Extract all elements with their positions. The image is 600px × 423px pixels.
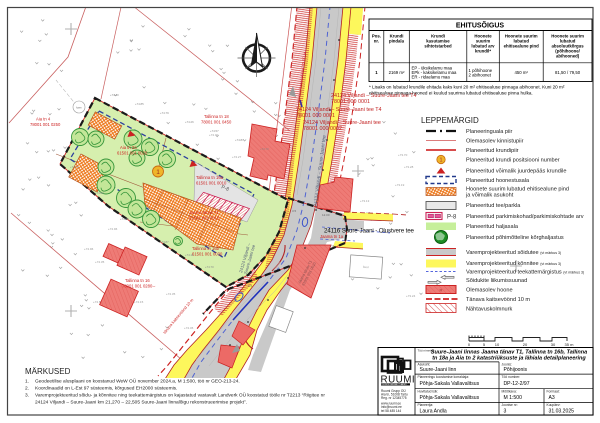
svg-text:35 m: 35 m bbox=[565, 342, 575, 347]
svg-text:ER - ridaelamu maa: ER - ridaelamu maa bbox=[412, 75, 451, 80]
svg-text:Jaama tänav T1: Jaama tänav T1 bbox=[189, 210, 220, 215]
svg-text:nr.: nr. bbox=[374, 39, 379, 44]
svg-text:3: 3 bbox=[504, 408, 507, 414]
svg-text:Formaat:: Formaat: bbox=[547, 389, 560, 393]
svg-text:abihooned): abihooned) bbox=[556, 54, 580, 59]
svg-text:Joonis:: Joonis: bbox=[502, 362, 513, 366]
svg-text:Huvitatud isik:: Huvitatud isik: bbox=[418, 389, 439, 393]
svg-text:20: 20 bbox=[523, 342, 528, 347]
svg-text:+74.87: +74.87 bbox=[160, 240, 169, 244]
svg-text:Planeerija:: Planeerija: bbox=[418, 403, 434, 407]
svg-text:+74.90: +74.90 bbox=[120, 217, 129, 221]
svg-text:10: 10 bbox=[495, 342, 500, 347]
svg-text:+74.84: +74.84 bbox=[95, 191, 104, 195]
svg-text:RUUMIS PARIMAD PLAANID: RUUMIS PARIMAD PLAANID bbox=[382, 383, 408, 386]
svg-text:Planeeritud krundipiir: Planeeritud krundipiir bbox=[466, 148, 519, 154]
svg-text:+74.35: +74.35 bbox=[166, 292, 176, 296]
svg-text:+73.28: +73.28 bbox=[404, 165, 414, 169]
svg-text:Sõidukite liikumissuunad: Sõidukite liikumissuunad bbox=[466, 278, 527, 284]
svg-text:Joonise nr:: Joonise nr: bbox=[502, 403, 518, 407]
svg-text:+73.19: +73.19 bbox=[395, 183, 405, 187]
svg-text:78001 000 0001: 78001 000 0001 bbox=[296, 113, 335, 119]
svg-text:P-8: P-8 bbox=[447, 215, 457, 221]
svg-text:2.: 2. bbox=[25, 386, 29, 392]
svg-text:Nähtavuskolmnurk: Nähtavuskolmnurk bbox=[466, 307, 513, 313]
svg-text:LEPPEMÄRGID: LEPPEMÄRGID bbox=[421, 116, 479, 125]
svg-text:31.03.2025: 31.03.2025 bbox=[549, 408, 575, 414]
svg-text:78001 000 0002: 78001 000 0002 bbox=[303, 126, 342, 132]
svg-text:3.5: 3.5 bbox=[248, 284, 253, 288]
svg-text:78001 001 0450: 78001 001 0450 bbox=[201, 120, 232, 125]
svg-text:+74.11: +74.11 bbox=[185, 253, 194, 257]
svg-text:tn 18a ja Aia tn 2 katastriüks: tn 18a ja Aia tn 2 katastriüksuste ja lä… bbox=[432, 356, 586, 362]
svg-text:Planeeritud põhimõtteline kõrg: Planeeritud põhimõtteline kõrghaljastus bbox=[466, 235, 564, 241]
svg-text:Põhja-Sakala Vallavalitsus: Põhja-Sakala Vallavalitsus bbox=[420, 381, 480, 387]
svg-text:ehitisealune pind: ehitisealune pind bbox=[504, 44, 539, 49]
svg-text:78001 000 0001: 78001 000 0001 bbox=[331, 99, 370, 105]
svg-text:Tänava kaitsevöönd 10 m: Tänava kaitsevöönd 10 m bbox=[466, 297, 530, 303]
svg-text:Planeeritud haljasala: Planeeritud haljasala bbox=[466, 224, 519, 230]
svg-text:M 1:500: M 1:500 bbox=[504, 395, 523, 401]
svg-text:Asukoht:: Asukoht: bbox=[418, 362, 431, 366]
svg-text:DP-12-2/97: DP-12-2/97 bbox=[504, 381, 530, 387]
svg-text:MÄRKUSED: MÄRKUSED bbox=[25, 367, 71, 376]
svg-text:61501 001 0030: 61501 001 0030 bbox=[192, 252, 223, 257]
svg-text:+73.13: +73.13 bbox=[360, 199, 370, 203]
svg-text:Planeeritud parkimiskohad/park: Planeeritud parkimiskohad/parkimiskohtad… bbox=[466, 214, 584, 220]
svg-text:Planeeringu koostamise korrald: Planeeringu koostamise korraldaja: bbox=[418, 375, 470, 379]
svg-text:2169 m²: 2169 m² bbox=[389, 70, 405, 75]
svg-text:+74.87: +74.87 bbox=[235, 138, 244, 142]
svg-text:+74.96: +74.96 bbox=[84, 247, 94, 251]
svg-text:+74.70: +74.70 bbox=[260, 147, 269, 151]
svg-text:* Lisaks on lubatud krundile e: * Lisaks on lubatud krundile ehitada kak… bbox=[369, 85, 565, 90]
svg-text:Aia tn 2a: Aia tn 2a bbox=[120, 145, 137, 150]
svg-text:Reg. nr 12345775: Reg. nr 12345775 bbox=[381, 396, 407, 400]
svg-text:1: 1 bbox=[439, 158, 442, 164]
svg-text:+74.35: +74.35 bbox=[95, 260, 105, 264]
svg-text:krundil*: krundil* bbox=[475, 49, 491, 54]
svg-text:+74.27: +74.27 bbox=[232, 155, 242, 159]
svg-text:+74.40: +74.40 bbox=[110, 93, 119, 97]
svg-text:+74.79: +74.79 bbox=[160, 111, 169, 115]
svg-text:Töö number:: Töö number: bbox=[502, 375, 521, 379]
svg-text:+74.70: +74.70 bbox=[209, 133, 219, 137]
svg-text:24124 Viljandi – Suure-Jaani k: 24124 Viljandi – Suure-Jaani km 21,270 –… bbox=[35, 400, 247, 406]
svg-text:78001 001 0280∼: 78001 001 0280∼ bbox=[122, 284, 156, 289]
svg-text:+74.15: +74.15 bbox=[134, 300, 144, 304]
svg-text:Tallinna tn 18: Tallinna tn 18 bbox=[204, 114, 229, 119]
svg-text:Põhijoonis: Põhijoonis bbox=[504, 367, 528, 373]
svg-text:81,50 / 79,50: 81,50 / 79,50 bbox=[555, 70, 581, 75]
svg-text:A3: A3 bbox=[549, 395, 555, 401]
svg-text:ja võimalik asukoht: ja võimalik asukoht bbox=[465, 193, 514, 199]
svg-text:Koordinaadid on L-Est 97 süste: Koordinaadid on L-Est 97 süsteemis, kõrg… bbox=[35, 386, 177, 392]
svg-text:61501 001 0010: 61501 001 0010 bbox=[196, 181, 227, 186]
svg-text:+73.70: +73.70 bbox=[398, 153, 408, 157]
svg-text:+74.57: +74.57 bbox=[210, 129, 219, 133]
svg-text:Jaama tn 1a: Jaama tn 1a bbox=[320, 234, 344, 239]
svg-text:R: R bbox=[440, 288, 443, 293]
svg-text:ehitisealuse pinnaga hooned ei: ehitisealuse pinnaga hooned ei kuulud su… bbox=[369, 91, 533, 96]
svg-text:EHITUSÕIGUS: EHITUSÕIGUS bbox=[456, 21, 505, 30]
svg-text:+74.26: +74.26 bbox=[185, 120, 194, 124]
svg-text:Tallinna tn 16: Tallinna tn 16 bbox=[125, 278, 150, 283]
svg-text:3.: 3. bbox=[25, 393, 29, 399]
svg-text:1: 1 bbox=[156, 169, 160, 176]
svg-text:Planeeritud tee/parkla: Planeeritud tee/parkla bbox=[466, 203, 521, 209]
svg-text:+74.85: +74.85 bbox=[135, 102, 144, 106]
svg-text:+74.70: +74.70 bbox=[205, 265, 214, 269]
svg-text:Planeeringuala piir: Planeeringuala piir bbox=[466, 129, 512, 135]
svg-text:12.00: 12.00 bbox=[322, 213, 330, 217]
svg-text:Kuupäev:: Kuupäev: bbox=[547, 403, 561, 407]
svg-text:+74.18: +74.18 bbox=[70, 165, 79, 169]
svg-text:Olemasolev kinnistupiir: Olemasolev kinnistupiir bbox=[466, 139, 524, 145]
svg-text:Planeeritud krundi positsiooni: Planeeritud krundi positsiooni number bbox=[466, 158, 560, 164]
svg-text:Tallinna tn 16b: Tallinna tn 16b bbox=[192, 246, 220, 251]
svg-text:24116 Suure-Jaani - Olustvere: 24116 Suure-Jaani - Olustvere tee bbox=[324, 228, 415, 235]
svg-text:Olemasolev hoone: Olemasolev hoone bbox=[466, 288, 513, 294]
svg-text:450 m²: 450 m² bbox=[515, 70, 529, 75]
svg-text:Laura Andla: Laura Andla bbox=[420, 408, 447, 414]
svg-text:7.0: 7.0 bbox=[330, 244, 335, 248]
svg-text:Põhja-Sakala Vallavalitsus: Põhja-Sakala Vallavalitsus bbox=[420, 395, 480, 401]
svg-text:tel 58 485 144: tel 58 485 144 bbox=[381, 409, 401, 413]
svg-text:61501 001 0010: 61501 001 0010 bbox=[189, 216, 220, 221]
svg-text:Planeeritud võimalik juurdepää: Planeeritud võimalik juurdepääs krundile bbox=[466, 169, 566, 175]
svg-text:sihtotstarbed: sihtotstarbed bbox=[424, 44, 452, 49]
svg-text:pindala: pindala bbox=[389, 39, 405, 44]
svg-text:Geodeetilise alusplaani on koo: Geodeetilise alusplaani on koostanud WeW… bbox=[35, 378, 240, 385]
svg-text:Suure-Jaani linn: Suure-Jaani linn bbox=[420, 367, 457, 373]
svg-text:2 abihoonet: 2 abihoonet bbox=[469, 73, 492, 78]
svg-text:61501 001 0020: 61501 001 0020 bbox=[117, 151, 148, 156]
svg-text:kuur: kuur bbox=[363, 265, 369, 269]
svg-text:+74.45: +74.45 bbox=[184, 326, 194, 330]
svg-text:Varemprojekteeritud sõidu- ja: Varemprojekteeritud sõidu- ja kõnnitee n… bbox=[35, 392, 325, 399]
svg-text:+74.96: +74.96 bbox=[108, 227, 118, 231]
svg-text:Tallinna tn 16a: Tallinna tn 16a bbox=[196, 175, 224, 180]
svg-text:78001 001 0250: 78001 001 0250 bbox=[30, 122, 61, 127]
svg-text:Planeeritud hoonestusala: Planeeritud hoonestusala bbox=[466, 178, 530, 184]
svg-text:3.5: 3.5 bbox=[292, 209, 297, 213]
svg-text:1.: 1. bbox=[25, 379, 29, 385]
svg-text:30: 30 bbox=[551, 342, 556, 347]
svg-text:+73.24: +73.24 bbox=[406, 294, 416, 298]
svg-text:kaev: kaev bbox=[76, 106, 82, 110]
svg-text:Mõõtkava:: Mõõtkava: bbox=[502, 389, 517, 393]
svg-text:Aia tn 4: Aia tn 4 bbox=[36, 117, 51, 122]
